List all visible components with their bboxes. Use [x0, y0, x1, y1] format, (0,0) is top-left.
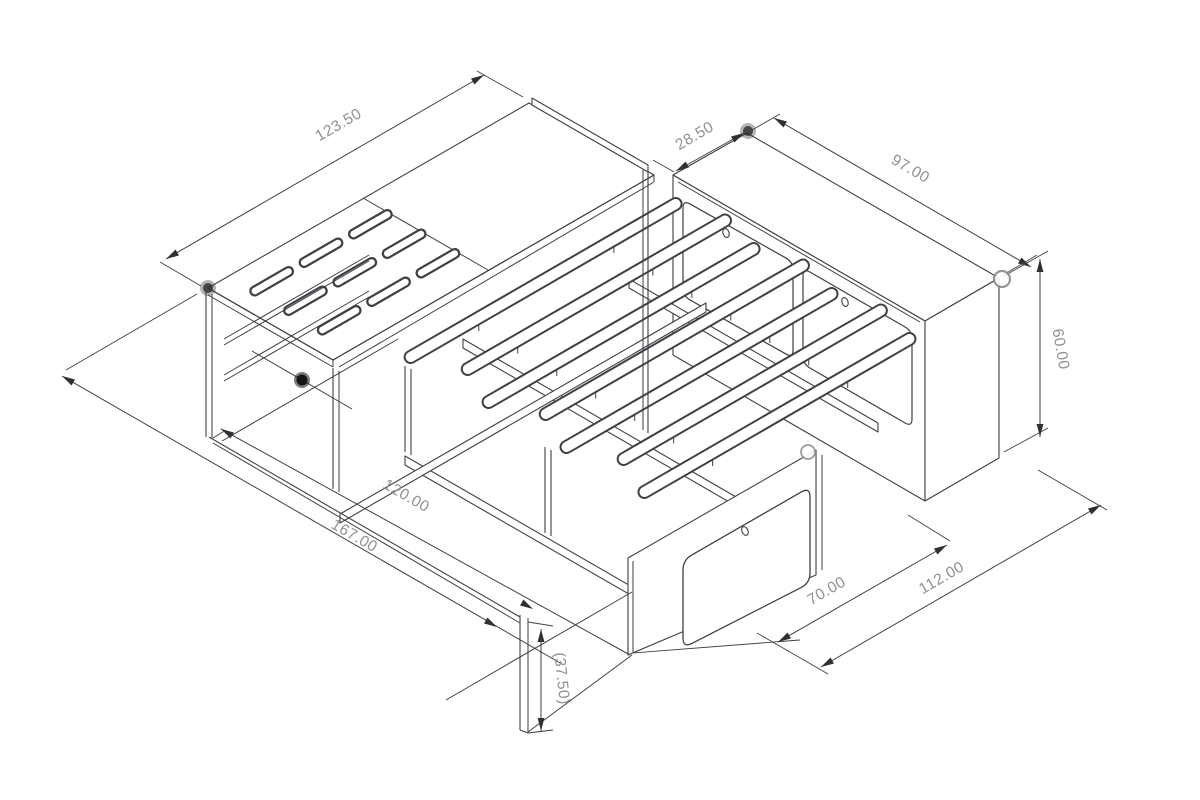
vertex-marker-platform-corner[interactable]	[200, 280, 216, 296]
vertex-marker-bench-right[interactable]	[994, 271, 1010, 287]
dimension-label-bench-length: 97.00	[888, 151, 932, 186]
vertex-marker-rail-mid[interactable]	[801, 445, 815, 459]
dimension-label-overall-width: 167.00	[328, 516, 380, 556]
vertex-marker-bench-corner[interactable]	[740, 123, 756, 139]
cad-canvas: 123.50 28.50 97.00 60.00 112.00 70.00 12…	[0, 0, 1200, 800]
dimension-label-support-height: (37.50)	[550, 651, 572, 705]
vertex-marker-frame-left[interactable]	[294, 372, 310, 388]
cad-viewport: 123.50 28.50 97.00 60.00 112.00 70.00 12…	[0, 0, 1200, 800]
drawing-geometry	[62, 71, 1107, 733]
dimension-label-opening-width: 70.00	[805, 573, 849, 608]
dimension-label-frame-length: 112.00	[916, 558, 967, 597]
dimension-label-bench-depth: 28.50	[673, 118, 717, 153]
dimension-label-platform-length: 123.50	[313, 105, 365, 145]
dimension-label-bench-height: 60.00	[1048, 327, 1072, 371]
